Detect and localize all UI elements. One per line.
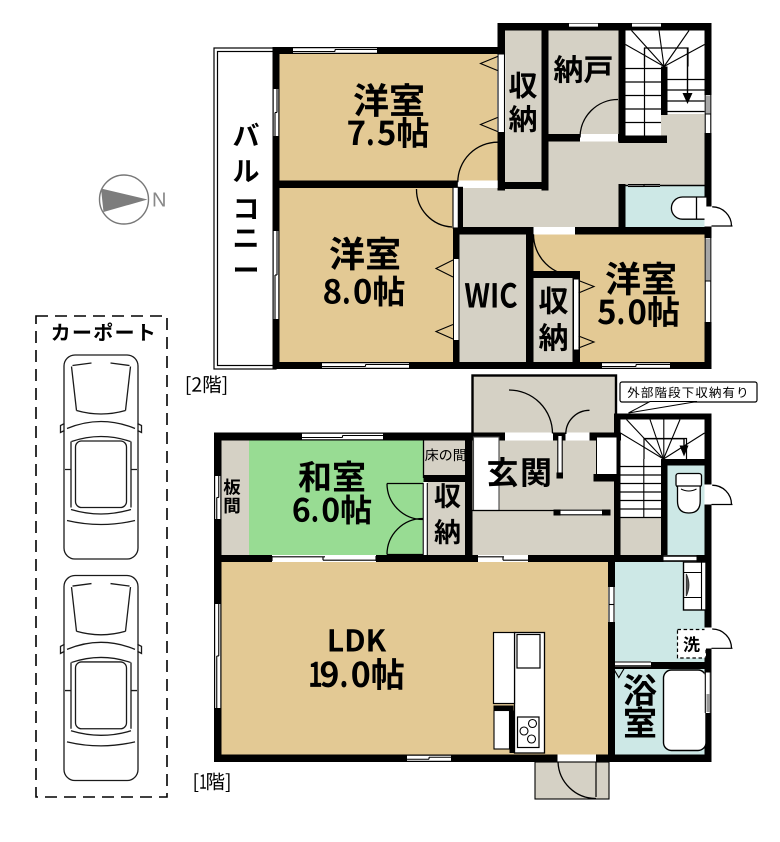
svg-text:N: N bbox=[152, 190, 166, 212]
